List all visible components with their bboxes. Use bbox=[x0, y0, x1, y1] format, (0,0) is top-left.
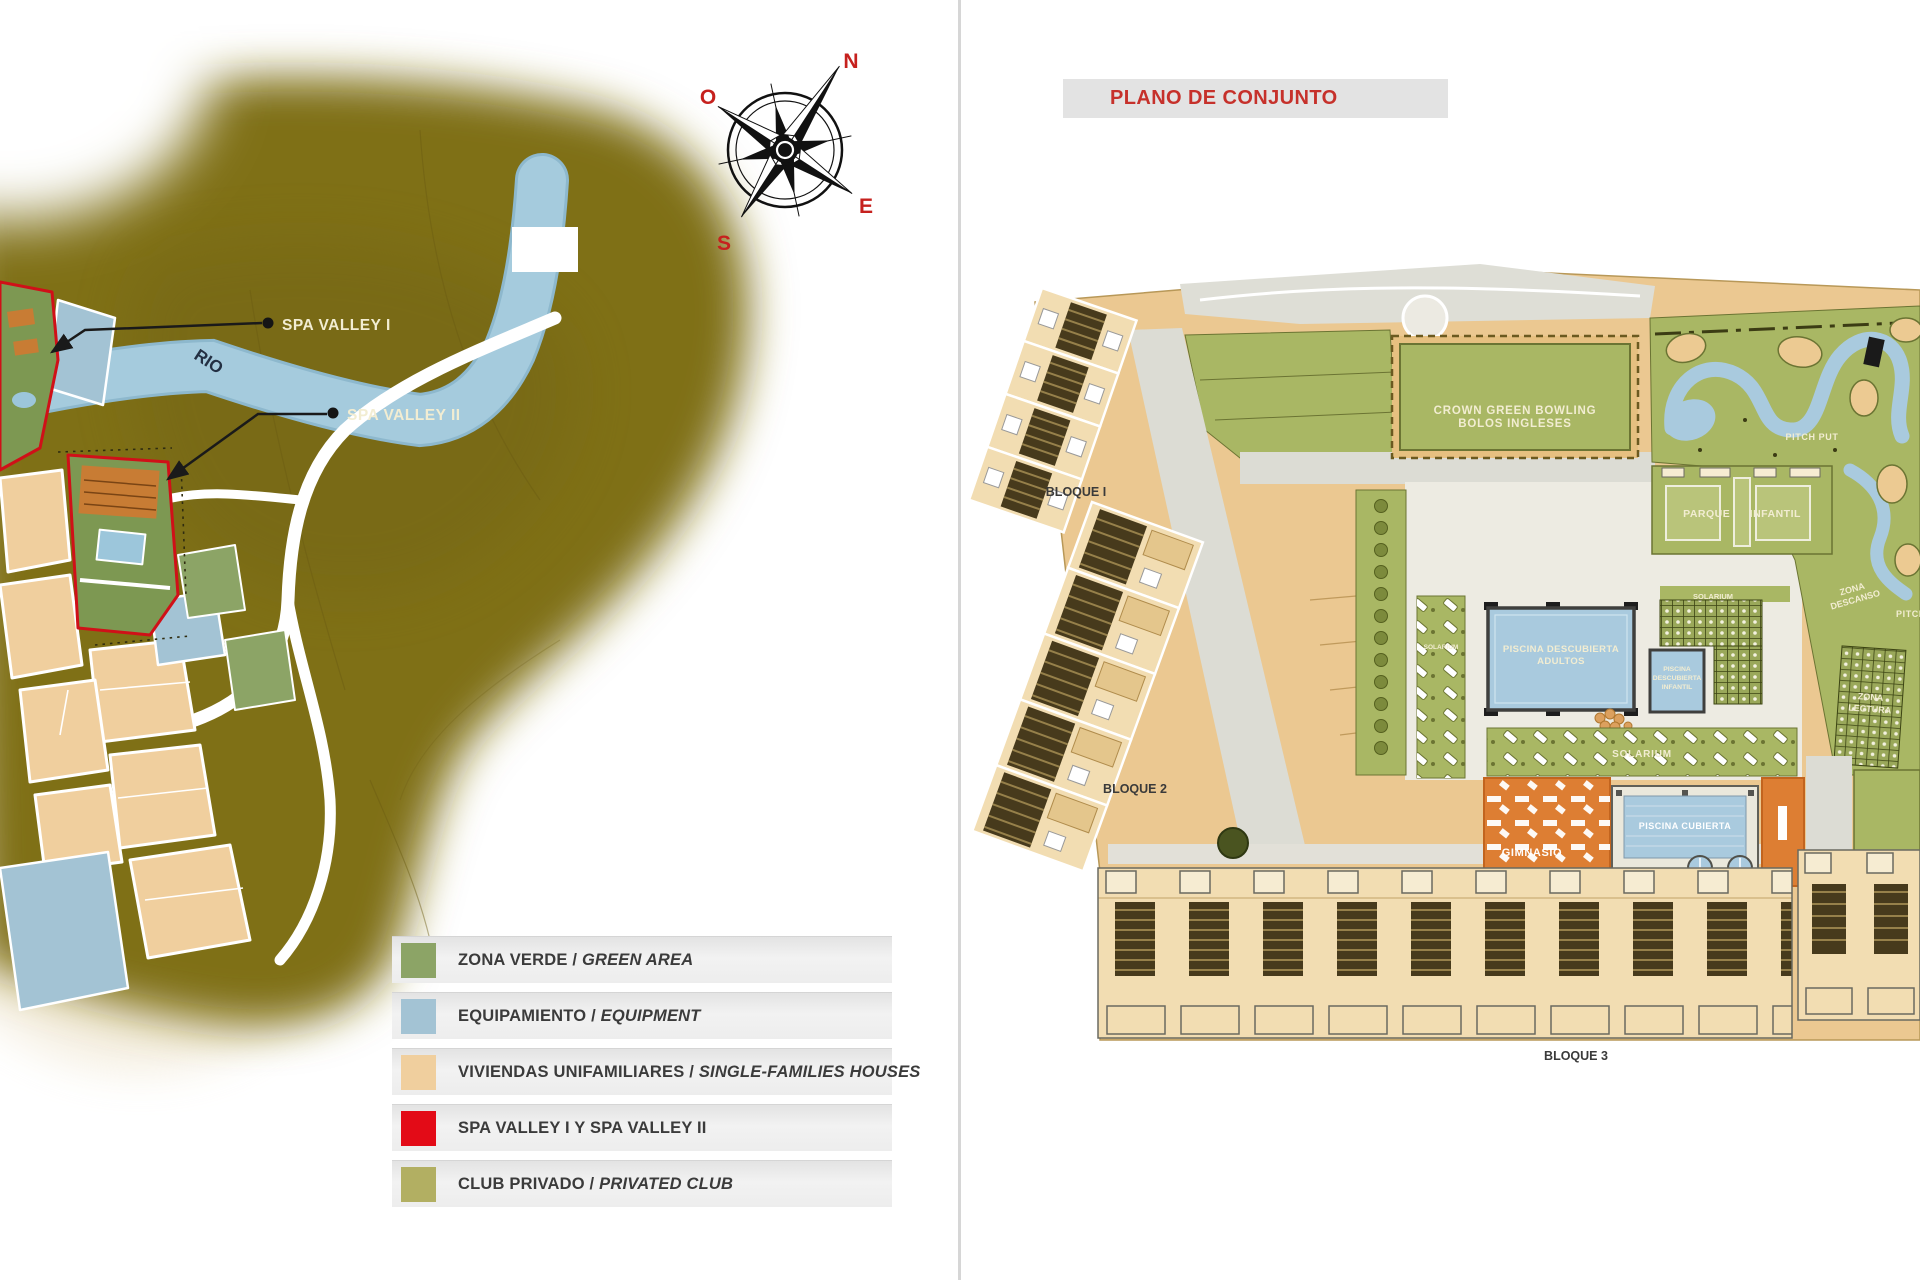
legend-swatch-olive bbox=[401, 1167, 436, 1202]
legend-item-private-club: CLUB PRIVADO / PRIVATED CLUB bbox=[392, 1160, 892, 1207]
bloque-3-housing bbox=[1098, 868, 1792, 1038]
spa-valley-2-parcel bbox=[68, 455, 178, 635]
legend-swatch-blue bbox=[401, 999, 436, 1034]
pitch-edge-label: PITCH bbox=[1896, 609, 1920, 619]
gimnasio-label: GIMNASIO bbox=[1502, 847, 1562, 859]
piscina-infantil-area: PISCINADESCUBIERTAINFANTIL bbox=[1650, 650, 1704, 712]
tree-strip bbox=[1356, 490, 1406, 775]
legend-label: EQUIPAMIENTO / EQUIPMENT bbox=[458, 1007, 701, 1026]
legend-label: CLUB PRIVADO / PRIVATED CLUB bbox=[458, 1175, 733, 1194]
bloque-2-label: BLOQUE 2 bbox=[1103, 782, 1167, 796]
legend-item-single-family-houses: VIVIENDAS UNIFAMILIARES / SINGLE-FAMILIE… bbox=[392, 1048, 892, 1095]
legend-label: SPA VALLEY I Y SPA VALLEY II bbox=[458, 1119, 707, 1138]
legend-swatch-tan bbox=[401, 1055, 436, 1090]
compass-e-label: E bbox=[859, 195, 873, 218]
compass-n-label: N bbox=[843, 50, 858, 73]
solarium-main-area: SOLARIUM bbox=[1487, 728, 1797, 776]
legend-swatch-red bbox=[401, 1111, 436, 1146]
solarium-side-label: SOLARIUM bbox=[1424, 644, 1459, 651]
legend-label: ZONA VERDE / GREEN AREA bbox=[458, 951, 693, 970]
spa-valley-2-label: SPA VALLEY II bbox=[347, 407, 461, 424]
parque-infantil-label: PARQUE INFANTIL bbox=[1683, 508, 1801, 520]
piscina-cubierta-label: PISCINA CUBIERTA bbox=[1639, 821, 1732, 831]
legend-item-green-area: ZONA VERDE / GREEN AREA bbox=[392, 936, 892, 983]
legend-swatch-green bbox=[401, 943, 436, 978]
bowling-green-area: CROWN GREEN BOWLINGBOLOS INGLESES bbox=[1392, 336, 1638, 458]
large-tree bbox=[1218, 828, 1248, 858]
legend-item-equipment: EQUIPAMIENTO / EQUIPMENT bbox=[392, 992, 892, 1039]
compass-o-label: O bbox=[700, 86, 716, 109]
legend-label: VIVIENDAS UNIFAMILIARES / SINGLE-FAMILIE… bbox=[458, 1063, 921, 1082]
callout-dot bbox=[263, 318, 274, 329]
solarium-main-label: SOLARIUM bbox=[1612, 749, 1672, 760]
pitch-put-label: PITCH PUT bbox=[1786, 432, 1839, 442]
compass-s-label: S bbox=[717, 232, 731, 255]
bloque-3-housing-east bbox=[1798, 850, 1920, 1020]
legend-item-spa-valley: SPA VALLEY I Y SPA VALLEY II bbox=[392, 1104, 892, 1151]
blank-label-box bbox=[512, 227, 578, 272]
spa-valley-1-label: SPA VALLEY I bbox=[282, 317, 391, 334]
parque-infantil-area: PARQUE INFANTIL bbox=[1652, 466, 1832, 554]
callout-dot bbox=[328, 408, 339, 419]
solarium-side-area: SOLARIUM bbox=[1417, 596, 1465, 778]
site-plan: CROWN GREEN BOWLINGBOLOS INGLESES PITCH … bbox=[960, 0, 1920, 1280]
zona-lectura-area: ZONALECTURA bbox=[1834, 646, 1906, 768]
map-legend: ZONA VERDE / GREEN AREA EQUIPAMIENTO / E… bbox=[392, 936, 892, 1216]
bloque-3-label: BLOQUE 3 bbox=[1544, 1049, 1608, 1063]
bloque-1-label: BLOQUE I bbox=[1046, 485, 1106, 499]
solarium-top-label: SOLARIUM bbox=[1693, 592, 1733, 601]
